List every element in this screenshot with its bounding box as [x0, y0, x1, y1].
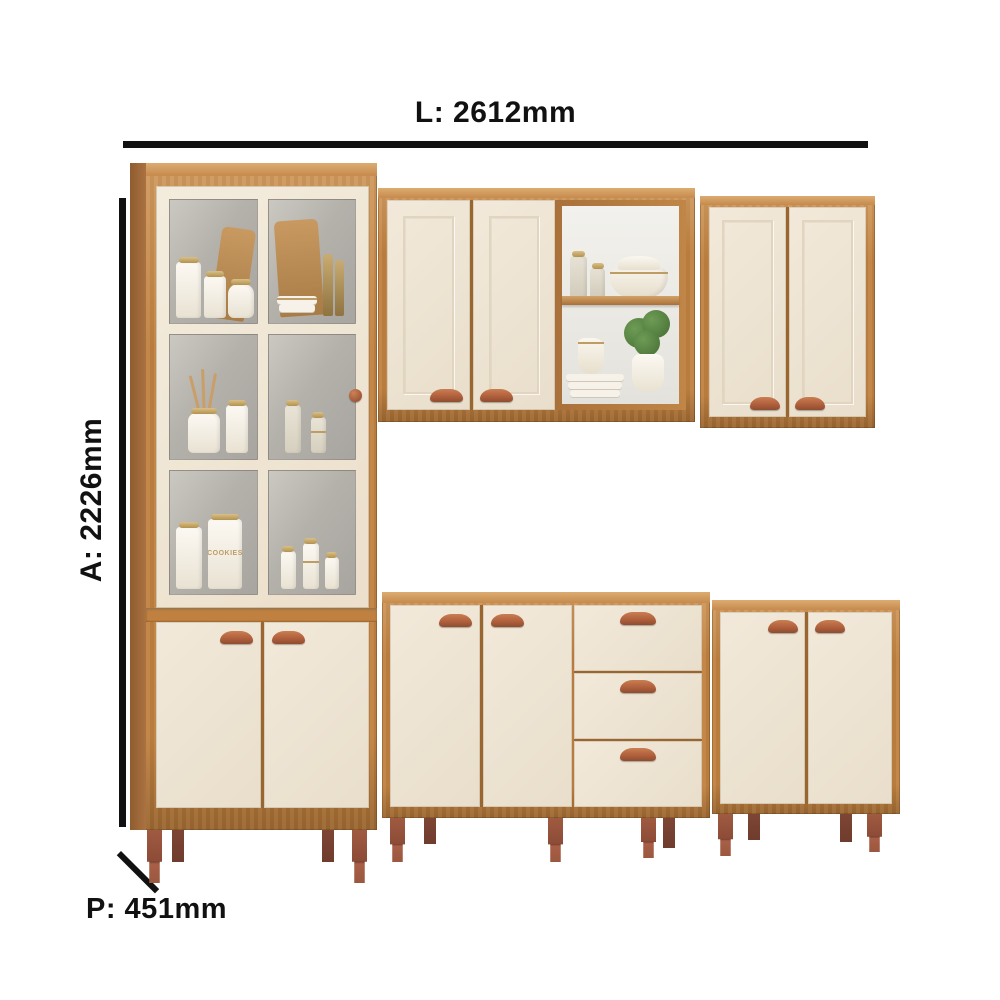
cabinet-leg	[390, 818, 405, 862]
cabinet-leg	[352, 830, 367, 883]
spice-jar	[281, 551, 296, 589]
shelf-divider	[562, 296, 679, 305]
cabinet-leg	[548, 818, 563, 862]
glass-pane-middle-left	[169, 334, 258, 459]
height-dimension-label: A: 2226mm	[75, 418, 109, 583]
tall-cabinet-top-edge	[146, 163, 377, 176]
upper-right-left-door	[709, 207, 786, 417]
product-dimension-diagram: L: 2612mm A: 2226mm P: 451mm	[0, 0, 1000, 1000]
lower-middle-left-door-handle	[439, 614, 472, 627]
cabinet-leg	[147, 830, 162, 883]
upper-right-right-door	[789, 207, 866, 417]
lower-middle-right-door-handle	[491, 614, 524, 627]
glass-pane-top-right	[268, 199, 357, 324]
plate-stack	[570, 390, 620, 397]
upper-middle-cabinet-top-edge	[378, 188, 695, 198]
upper-right-right-door-handle	[795, 397, 825, 410]
width-dimension-label: L: 2612mm	[123, 96, 868, 130]
drawer-2-handle	[620, 680, 656, 693]
cabinet-back-leg	[424, 818, 436, 844]
lower-middle-right-door	[483, 605, 573, 807]
drawer-3-handle	[620, 748, 656, 761]
ceramic-canister	[176, 527, 202, 589]
upper-right-cabinet-doors	[709, 207, 866, 417]
upper-right-cabinet	[700, 196, 875, 428]
soup-tureen-lid	[618, 256, 660, 270]
gold-trim	[311, 431, 326, 433]
upper-right-left-door-handle	[750, 397, 780, 410]
cabinet-leg	[641, 818, 656, 858]
door-molding	[489, 216, 540, 394]
lower-middle-cabinet	[382, 592, 710, 818]
upper-right-cabinet-top-edge	[700, 196, 875, 205]
open-shelf-niche	[555, 200, 686, 410]
lower-middle-cabinet-drawers	[574, 605, 702, 807]
gold-trim	[303, 561, 319, 563]
depth-dimension-label: P: 451mm	[86, 893, 227, 926]
drawer-3	[574, 741, 702, 807]
upper-middle-cabinet-doors	[387, 200, 555, 410]
cabinet-leg	[867, 814, 882, 852]
lower-right-right-door	[808, 612, 893, 804]
gold-trim	[610, 272, 668, 274]
tall-cabinet-mid-rail	[146, 608, 377, 622]
glass-pane-grid: COOKIES	[169, 199, 356, 595]
upper-middle-left-door	[387, 200, 470, 410]
tall-cabinet-lower-doors	[156, 622, 369, 808]
spice-jar	[303, 543, 319, 589]
upper-middle-left-door-handle	[430, 389, 463, 402]
glass-jar	[285, 405, 301, 453]
lower-right-cabinet	[712, 600, 900, 814]
pepper-grinder	[335, 260, 344, 316]
glass-canister	[590, 268, 605, 298]
lower-middle-cabinet-doors	[390, 605, 572, 807]
lower-right-cabinet-doors	[720, 612, 892, 804]
utensil-crock	[188, 413, 220, 453]
tall-cabinet: COOKIES	[130, 163, 377, 830]
lower-middle-left-door	[390, 605, 480, 807]
ceramic-canister	[176, 262, 201, 318]
cabinet-back-leg	[663, 818, 675, 848]
glass-pane-middle-right	[268, 334, 357, 459]
glass-pane-bottom-right	[268, 470, 357, 595]
cabinet-back-leg	[840, 814, 852, 842]
shelf-back-wall	[562, 206, 679, 404]
cabinet-back-leg	[172, 830, 184, 862]
lower-right-left-door	[720, 612, 805, 804]
cookies-jar-label: COOKIES	[207, 550, 243, 557]
drawer-1-handle	[620, 612, 656, 625]
plate-stack	[568, 382, 622, 389]
glass-pane-top-left	[169, 199, 258, 324]
plant-pot	[632, 354, 664, 392]
glass-canister	[570, 256, 587, 298]
tall-lower-left-door-handle	[220, 631, 253, 644]
cabinet-back-leg	[748, 814, 760, 840]
width-dimension-line	[123, 141, 868, 148]
potted-plant-foliage	[634, 330, 660, 356]
ceramic-canister	[226, 405, 248, 453]
door-molding	[722, 220, 773, 404]
tall-lower-right-door	[264, 622, 369, 808]
cabinet-leg	[718, 814, 733, 856]
ceramic-canister	[204, 276, 226, 318]
lower-middle-cabinet-top-edge	[382, 592, 710, 603]
drawer-1	[574, 605, 702, 671]
pepper-grinder	[323, 254, 333, 316]
glass-pane-bottom-left: COOKIES	[169, 470, 258, 595]
tall-cabinet-side-panel	[130, 163, 146, 830]
plate-stack	[566, 374, 624, 381]
ceramic-pot	[228, 284, 254, 318]
door-molding	[403, 216, 454, 394]
tall-lower-left-door	[156, 622, 261, 808]
tall-lower-right-door-handle	[272, 631, 305, 644]
lower-right-cabinet-top-edge	[712, 600, 900, 610]
upper-middle-cabinet	[378, 188, 695, 422]
drawer-2	[574, 673, 702, 739]
glass-display-door: COOKIES	[156, 186, 369, 608]
door-molding	[802, 220, 853, 404]
lower-right-left-door-handle	[768, 620, 798, 633]
cookies-jar: COOKIES	[208, 519, 242, 589]
height-dimension-line	[119, 198, 126, 827]
lower-right-right-door-handle	[815, 620, 845, 633]
gold-trim	[277, 298, 317, 300]
spice-jar	[325, 557, 339, 589]
glass-door-knob	[349, 389, 362, 402]
bowl-stack	[279, 304, 315, 312]
upper-middle-right-door-handle	[480, 389, 513, 402]
glass-jar	[311, 417, 326, 453]
gold-trim	[578, 342, 604, 344]
upper-middle-right-door	[473, 200, 556, 410]
cabinet-back-leg	[322, 830, 334, 862]
